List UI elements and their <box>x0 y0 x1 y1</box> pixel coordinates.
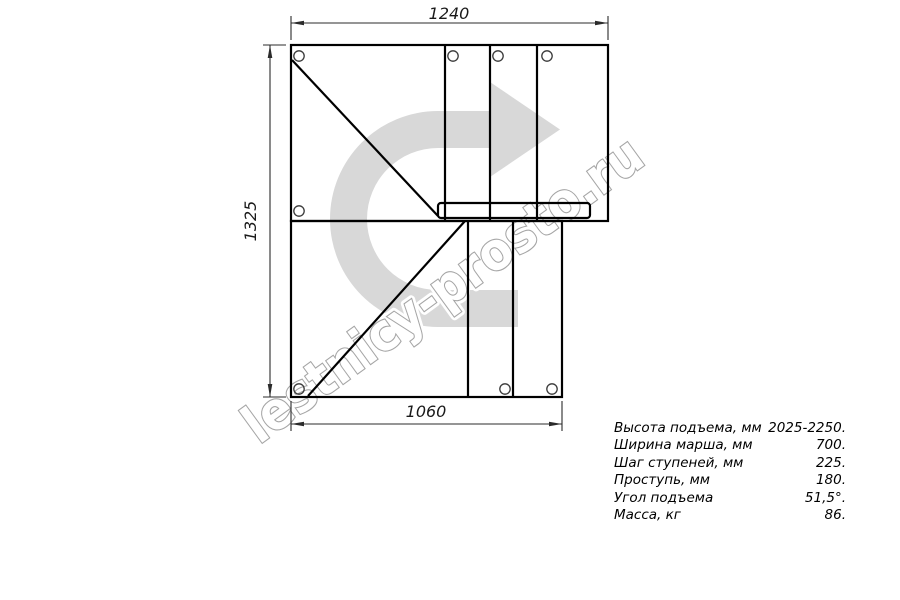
spec-value: 51,5°. <box>805 490 846 507</box>
spec-value: 2025-2250. <box>768 420 846 437</box>
spec-value: 700. <box>816 437 846 454</box>
arrowhead <box>268 45 273 58</box>
spec-label: Высота подъема, мм <box>614 420 762 437</box>
spec-label: Угол подъема <box>614 490 713 507</box>
mount-hole <box>493 51 503 61</box>
spec-row: Угол подъема 51,5°. <box>614 490 846 507</box>
spec-row: Ширина марша, мм 700. <box>614 437 846 454</box>
dim-top-label: 1240 <box>429 4 470 23</box>
mount-hole <box>547 384 557 394</box>
spec-label: Проступь, мм <box>614 472 710 489</box>
spec-row: Шаг ступеней, мм 225. <box>614 455 846 472</box>
dimension-left <box>263 45 286 397</box>
spec-value: 225. <box>816 455 846 472</box>
dim-bottom-label: 1060 <box>406 402 447 421</box>
dim-left-label: 1325 <box>241 201 260 242</box>
spec-label: Шаг ступеней, мм <box>614 455 743 472</box>
mount-hole <box>542 51 552 61</box>
spec-row: Высота подъема, мм 2025-2250. <box>614 420 846 437</box>
mount-hole <box>448 51 458 61</box>
arrowhead <box>595 21 608 26</box>
spec-value: 180. <box>816 472 846 489</box>
spec-value: 86. <box>825 507 846 524</box>
arrowhead <box>549 422 562 427</box>
mount-hole <box>294 51 304 61</box>
spec-table: Высота подъема, мм 2025-2250. Ширина мар… <box>614 420 846 524</box>
spec-row: Масса, кг 86. <box>614 507 846 524</box>
mount-hole <box>294 206 304 216</box>
spec-label: Ширина марша, мм <box>614 437 753 454</box>
mount-hole <box>500 384 510 394</box>
spec-row: Проступь, мм 180. <box>614 472 846 489</box>
spec-label: Масса, кг <box>614 507 681 524</box>
arrowhead <box>291 21 304 26</box>
